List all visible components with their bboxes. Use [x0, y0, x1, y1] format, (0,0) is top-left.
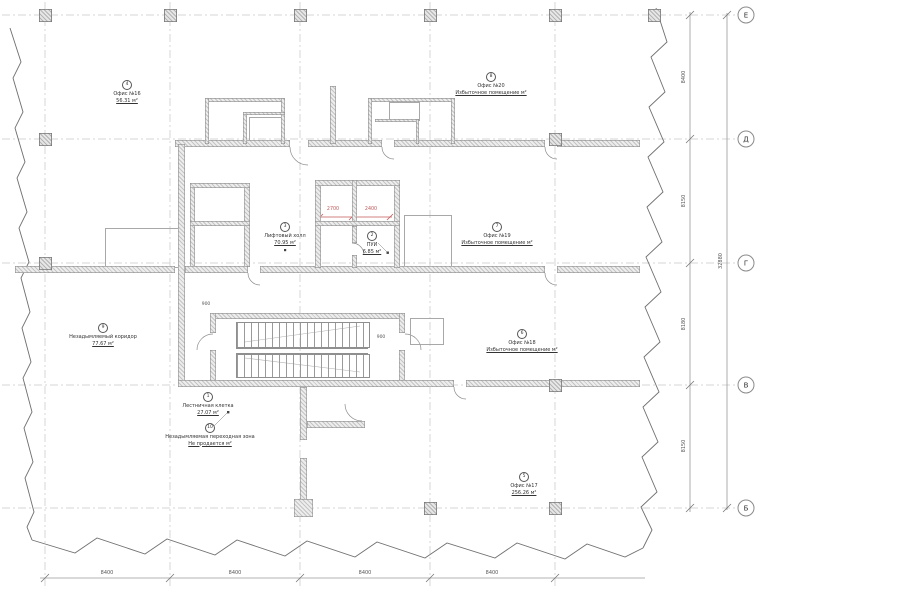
wall-segment [175, 140, 290, 147]
wall-segment [178, 380, 454, 387]
stair-wall [399, 350, 405, 384]
wall-segment [557, 266, 640, 273]
column-marker [164, 9, 177, 22]
bottom-dim-label: 8400 [359, 570, 372, 576]
room-area: Не продается м² [188, 441, 232, 448]
wall-segment [294, 499, 313, 517]
column-marker [39, 9, 52, 22]
room-number-badge: 7 [492, 222, 502, 232]
grid-bubble-D: Д [738, 131, 755, 148]
total-dim-label: 32880 [718, 253, 724, 269]
grid-bubble-V: В [738, 377, 755, 394]
room-area: 256.26 м² [512, 490, 537, 497]
right-dim-label: 8180 [681, 318, 687, 331]
wall-segment [205, 98, 209, 144]
wall-segment [243, 112, 285, 115]
stair-wall [399, 313, 405, 333]
column-marker [424, 502, 437, 515]
stair-wall [210, 313, 216, 333]
room-area: Избыточное помещение м² [461, 240, 532, 247]
room-area: 6.85 м² [363, 249, 382, 256]
room-label-pui: 2 ПУИ 6.85 м² [316, 231, 428, 255]
wall-segment [300, 458, 307, 503]
wall-segment [330, 86, 336, 144]
right-dim-label: 8150 [681, 195, 687, 208]
wall-segment [307, 421, 365, 428]
grid-bubble-E: Е [738, 7, 755, 24]
column-marker [424, 9, 437, 22]
room-label-office-16: 4 Офис №16 56.31 м² [71, 80, 183, 104]
wall-segment [368, 98, 455, 102]
wall-segment [368, 98, 372, 144]
red-dim-label: 2400 [365, 207, 377, 212]
bottom-dim-label: 8400 [101, 570, 114, 576]
room-area: 77.67 м² [92, 341, 114, 348]
wall-segment [300, 387, 307, 440]
room-label-corridor: 9 Незадымляемый коридор 77.67 м² [47, 323, 159, 347]
room-label-staircase: 1 Лестничная клетка 27.07 м² [152, 392, 264, 416]
room-number-badge: 4 [122, 80, 132, 90]
stair-flight-lower [236, 354, 370, 378]
room-area: 70.95 м² [274, 240, 296, 247]
right-dim-label: 8400 [681, 71, 687, 84]
room-label-office-18: 6 Офис №18 Избыточное помещение м² [466, 329, 578, 353]
small-dim-label: 900 [377, 335, 386, 340]
bottom-dim-label: 8400 [229, 570, 242, 576]
elevator-wall [315, 180, 400, 186]
floor-plan-canvas: 4 Офис №16 56.31 м² 8 Офис №20 Избыточно… [0, 0, 900, 604]
grid-bubble-B: Б [738, 500, 755, 517]
column-marker [39, 133, 52, 146]
wall-segment [190, 183, 250, 188]
room-label-transfer-zone: 10 Незадымляемая переходная зона Не прод… [154, 423, 266, 447]
room-number-badge: 5 [519, 472, 529, 482]
room-area: 27.07 м² [197, 410, 219, 417]
wall-segment [375, 119, 419, 122]
wall-segment [260, 266, 545, 273]
column-marker [549, 502, 562, 515]
wall-segment [281, 98, 285, 144]
stair-flight-upper [236, 322, 370, 348]
room-number-badge: 9 [98, 323, 108, 333]
stair-wall [210, 350, 216, 384]
column-marker [549, 9, 562, 22]
wall-segment [416, 119, 419, 144]
room-number-badge: 1 [203, 392, 213, 402]
partition-outline [410, 318, 444, 345]
column-marker [39, 257, 52, 270]
column-marker [294, 9, 307, 22]
room-label-office-20: 8 Офис №20 Избыточное помещение м² [435, 72, 547, 96]
small-dim-label: 900 [202, 302, 211, 307]
room-number-badge: 6 [517, 329, 527, 339]
room-area: Избыточное помещение м² [486, 347, 557, 354]
room-area: Избыточное помещение м² [455, 90, 526, 97]
wall-segment [451, 98, 455, 144]
wall-segment [178, 144, 185, 384]
room-label-office-19: 7 Офис №19 Избыточное помещение м² [441, 222, 553, 246]
elevator-wall [352, 255, 357, 268]
grid-bubble-G: Г [738, 255, 755, 272]
red-dim-label: 2700 [327, 207, 339, 212]
wall-segment [243, 112, 247, 144]
room-number-badge: 3 [280, 222, 290, 232]
column-marker [549, 133, 562, 146]
room-label-office-17: 5 Офис №17 256.26 м² [468, 472, 580, 496]
wall-segment [185, 266, 248, 273]
stair-wall [210, 313, 405, 319]
column-marker [549, 379, 562, 392]
bottom-dim-label: 8400 [486, 570, 499, 576]
room-area: 56.31 м² [116, 98, 138, 105]
room-number-badge: 2 [367, 231, 377, 241]
column-marker [648, 9, 661, 22]
partition-outline [105, 228, 180, 268]
right-dim-label: 8150 [681, 440, 687, 453]
room-number-badge: 8 [486, 72, 496, 82]
elevator-wall [352, 180, 357, 227]
wall-segment [205, 98, 285, 102]
wall-segment [557, 140, 640, 147]
room-number-badge: 10 [205, 423, 215, 433]
